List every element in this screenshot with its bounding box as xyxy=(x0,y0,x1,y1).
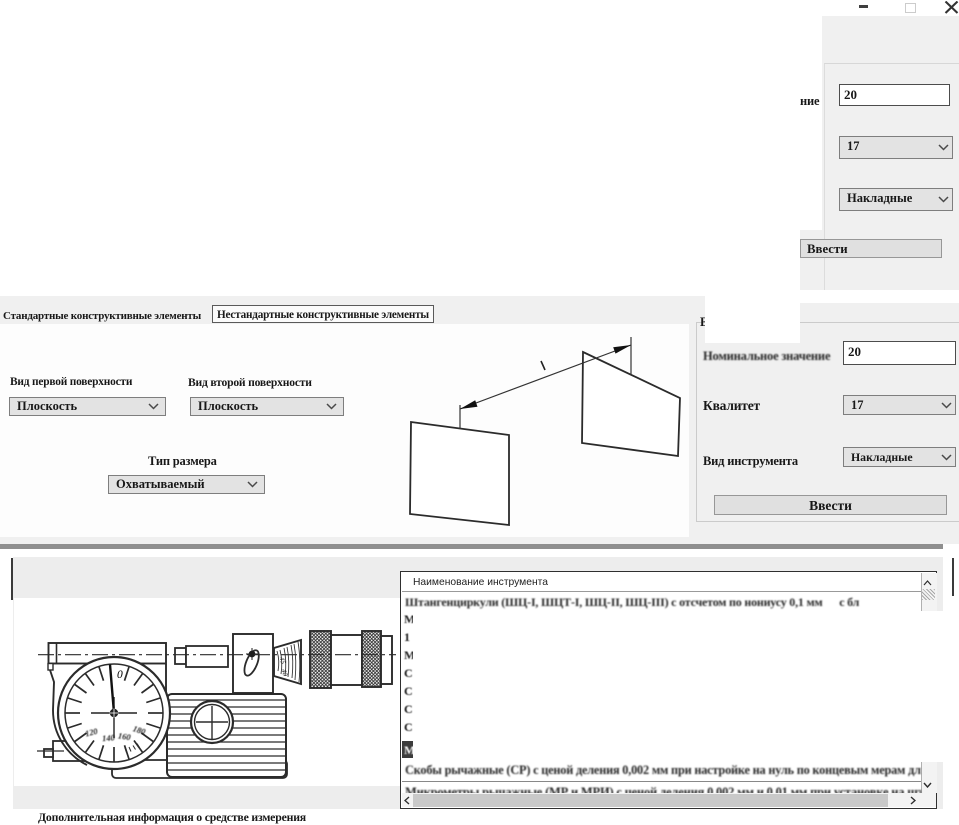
svg-text:160: 160 xyxy=(117,730,132,742)
svg-text:140: 140 xyxy=(102,732,116,743)
svg-text:0: 0 xyxy=(117,669,123,681)
